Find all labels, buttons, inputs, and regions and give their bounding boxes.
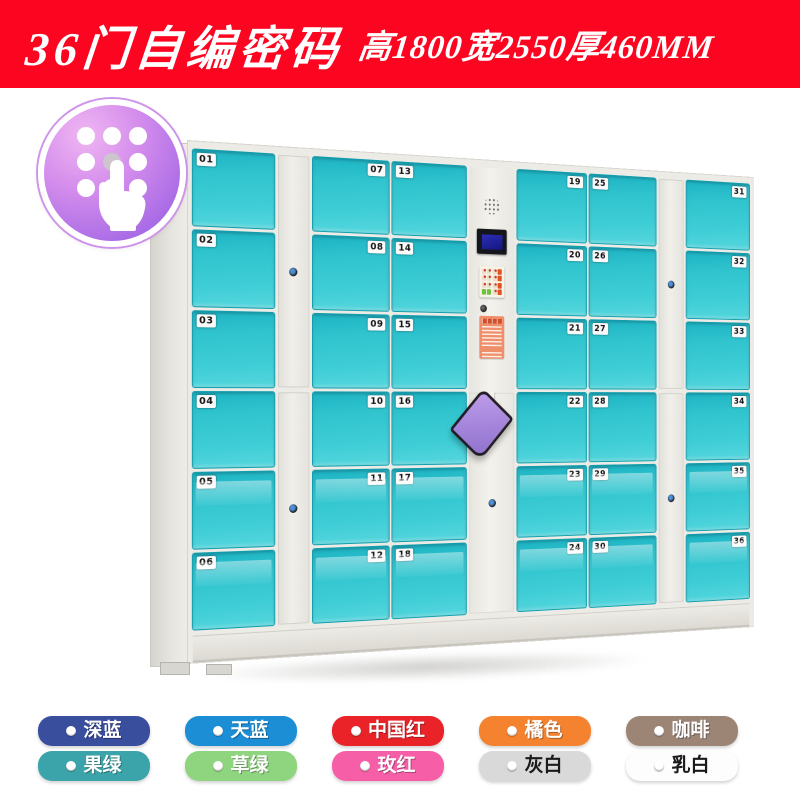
locker-door: 20 (517, 244, 586, 315)
keypad-key (482, 289, 486, 295)
door-number-label: 02 (197, 233, 216, 247)
keypad-key (487, 282, 491, 288)
locker-door: 15 (393, 316, 467, 388)
keypad-key (498, 283, 502, 289)
locker-column: 010203040506 (193, 149, 274, 629)
door-number-label: 35 (732, 466, 746, 477)
swatch-label: 中国红 (368, 716, 425, 746)
keypad (479, 266, 504, 298)
keypad-key (492, 283, 496, 289)
locker-door: 26 (589, 247, 655, 317)
locker-column: 252627282930 (589, 174, 655, 607)
locker-door: 17 (393, 468, 467, 541)
door-number-label: 33 (732, 326, 746, 338)
locker-door: 12 (312, 546, 389, 623)
swatch-label: 果绿 (83, 751, 121, 781)
locker-door: 01 (193, 149, 274, 228)
sticker-text-lines (482, 352, 502, 358)
swatch-label: 咖啡 (671, 716, 709, 746)
locker-door: 05 (193, 471, 274, 548)
door-number-label: 03 (197, 314, 216, 327)
locker-door: 28 (589, 393, 655, 461)
locker-door: 23 (517, 466, 586, 537)
door-number-label: 29 (592, 468, 608, 480)
door-number-label: 26 (592, 250, 608, 262)
locker-door: 09 (312, 314, 389, 388)
lock-icon (488, 498, 495, 507)
product-image: 36门自编密码 高1800宽2550厚460MM 010203040506070… (0, 0, 800, 800)
swatch-label: 灰白 (524, 751, 562, 781)
lock-icon (289, 267, 297, 276)
stile-door (278, 392, 309, 625)
door-number-label: 17 (396, 472, 413, 485)
swatch-label: 橘色 (524, 716, 562, 746)
door-number-label: 01 (197, 153, 216, 167)
swatch-dot-icon (351, 726, 361, 736)
color-swatch[interactable]: 咖啡 (626, 716, 738, 746)
color-swatch[interactable]: 橘色 (479, 716, 591, 746)
door-number-label: 15 (396, 319, 413, 332)
keypad-key (498, 269, 502, 275)
door-number-label: 04 (197, 395, 216, 408)
lock-icon (289, 504, 297, 513)
banner: 36门自编密码 高1800宽2550厚460MM (0, 0, 800, 88)
locker-column: 313233343536 (687, 181, 750, 602)
lcd-display (481, 234, 502, 250)
locker-door: 14 (393, 239, 467, 313)
door-number-label: 11 (368, 472, 386, 485)
keypad-key (482, 275, 486, 281)
instruction-sticker (479, 316, 504, 359)
speaker-grille-icon (484, 197, 501, 215)
door-number-label: 05 (197, 475, 216, 488)
color-swatch[interactable]: 天蓝 (185, 716, 297, 746)
locker-door: 27 (589, 320, 655, 389)
locker-door: 32 (687, 251, 750, 319)
keypad-key (487, 269, 491, 275)
locker-door: 10 (312, 392, 389, 466)
door-number-label: 25 (592, 177, 608, 190)
door-number-label: 06 (197, 556, 216, 570)
door-number-label: 12 (368, 549, 386, 562)
door-number-label: 34 (732, 396, 746, 407)
cabinet-foot (206, 664, 232, 675)
locker-column: 131415161718 (393, 162, 467, 618)
locker-door: 04 (193, 392, 274, 468)
door-number-label: 18 (396, 548, 413, 561)
door-number-label: 13 (396, 165, 413, 178)
banner-title: 36门自编密码 (23, 10, 346, 79)
cabinet: 0102030405060708091011121314151617181920… (187, 140, 754, 664)
door-number-label: 09 (368, 318, 386, 331)
locker-door: 30 (589, 536, 655, 607)
door-number-label: 21 (567, 322, 583, 334)
color-swatch[interactable]: 草绿 (185, 751, 297, 781)
locker-door: 08 (312, 235, 389, 310)
swatch-dot-icon (507, 761, 517, 771)
keypad-key (492, 269, 496, 275)
keypad-key (487, 276, 491, 282)
locker-door: 33 (687, 322, 750, 389)
lock-icon (668, 494, 675, 502)
cabinet-columns: 0102030405060708091011121314151617181920… (193, 149, 749, 629)
swatch-label: 玫红 (377, 751, 415, 781)
swatch-label: 草绿 (230, 751, 268, 781)
keypad-key (487, 289, 491, 295)
locker-column: 070809101112 (312, 157, 389, 623)
locker-door: 35 (687, 463, 750, 531)
stile-door (278, 155, 309, 388)
keypad-key (482, 282, 486, 288)
cabinet-foot (160, 662, 190, 675)
keypad-key (492, 289, 496, 295)
locker-door: 29 (589, 465, 655, 535)
color-swatch[interactable]: 中国红 (332, 716, 444, 746)
door-number-label: 27 (592, 323, 608, 335)
door-number-label: 08 (368, 241, 386, 254)
color-swatch[interactable]: 玫红 (332, 751, 444, 781)
keypad-key (498, 290, 502, 296)
swatch-dot-icon (654, 726, 664, 736)
locker-door: 22 (517, 393, 586, 463)
swatch-label: 乳白 (671, 751, 709, 781)
swatch-label: 天蓝 (230, 716, 268, 746)
swatch-dot-icon (507, 726, 517, 736)
locker-door: 02 (193, 230, 274, 308)
control-lower-door (470, 393, 514, 614)
swatch-dot-icon (66, 761, 76, 771)
locker-door: 18 (393, 543, 467, 618)
color-swatch[interactable]: 深蓝 (38, 716, 150, 746)
locker-door: 25 (589, 174, 655, 245)
locker-door: 19 (517, 170, 586, 243)
locker-door: 36 (687, 533, 750, 602)
swatch-dot-icon (654, 761, 664, 771)
locker-door: 07 (312, 157, 389, 234)
locker-door: 03 (193, 311, 274, 387)
control-column (470, 167, 514, 614)
lcd-screen (477, 229, 507, 255)
door-number-label: 10 (368, 395, 386, 407)
door-number-label: 28 (592, 396, 608, 408)
banner-dimensions: 高1800宽2550厚460MM (356, 20, 717, 68)
keypad-touch-icon (38, 99, 186, 247)
door-number-label: 20 (567, 249, 583, 261)
control-panel (470, 167, 514, 388)
locker-door: 06 (193, 551, 274, 630)
color-swatch[interactable]: 乳白 (626, 751, 738, 781)
locker-door: 21 (517, 318, 586, 388)
swatch-dot-icon (213, 726, 223, 736)
color-option-row: 深蓝天蓝中国红橘色咖啡 (0, 716, 800, 746)
swatch-dot-icon (360, 761, 370, 771)
door-number-label: 14 (396, 242, 413, 255)
stile-door (658, 179, 683, 389)
swatch-label: 深蓝 (83, 716, 121, 746)
keypad-key (498, 276, 502, 282)
door-number-label: 19 (567, 176, 583, 189)
lock-icon (668, 280, 675, 288)
door-number-label: 30 (592, 541, 608, 553)
color-swatch[interactable]: 果绿 (38, 751, 150, 781)
door-number-label: 22 (567, 396, 583, 408)
swatch-dot-icon (66, 726, 76, 736)
locker-door: 11 (312, 469, 389, 544)
locker-column: 192021222324 (517, 170, 586, 611)
keypad-key (482, 269, 486, 275)
locker-door: 24 (517, 539, 586, 611)
color-option-row: 果绿草绿玫红灰白乳白 (0, 751, 800, 781)
lock-stile-column (278, 155, 309, 625)
door-number-label: 07 (368, 163, 386, 176)
door-number-label: 32 (732, 256, 746, 268)
door-number-label: 16 (396, 395, 413, 407)
pressing-hand-icon (86, 157, 150, 233)
sticker-text-lines (482, 326, 502, 349)
lock-stile-column (658, 179, 683, 603)
locker-door: 13 (393, 162, 467, 237)
stile-door (658, 393, 683, 603)
color-options: 深蓝天蓝中国红橘色咖啡果绿草绿玫红灰白乳白 (0, 716, 800, 786)
locker-door: 34 (687, 393, 750, 460)
door-number-label: 23 (567, 469, 583, 481)
door-number-label: 31 (732, 186, 746, 198)
door-number-label: 24 (567, 542, 583, 554)
keypad-key (492, 276, 496, 282)
lock-icon (480, 305, 487, 313)
sticker-header (482, 319, 502, 324)
swatch-dot-icon (213, 761, 223, 771)
locker-door: 31 (687, 181, 750, 250)
color-swatch[interactable]: 灰白 (479, 751, 591, 781)
door-number-label: 36 (732, 535, 746, 547)
